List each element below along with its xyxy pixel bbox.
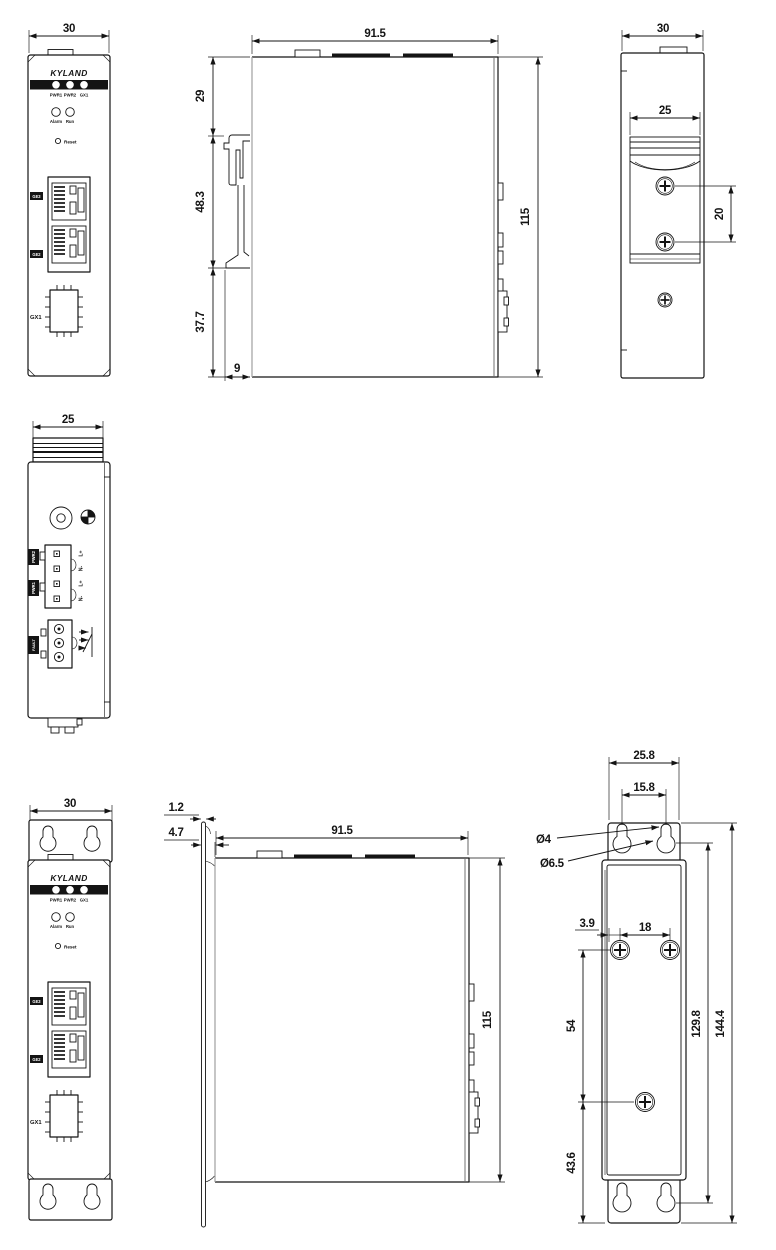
top-vent [365,855,415,859]
ge3-badge-label: GE3 [32,999,41,1004]
dim-clip-depth-label: 9 [234,363,240,375]
pin3-label: L+ [79,580,85,586]
led-pwr1 [52,886,60,894]
top-vent [294,855,352,859]
dim-hole-diameter-label: Ø6.5 [540,858,565,870]
ge3-badge-label: GE3 [32,194,41,199]
dim-overall-height-label: 144.4 [715,1009,727,1037]
led-gx1-label: GX1 [80,93,89,98]
rear-body [602,860,686,1180]
rj45-port-ge2[interactable] [52,226,86,263]
view-rear-din: 30 25 20 [621,23,736,378]
dim-front-din-width: 30 [29,23,109,53]
dimension-drawing: 30 KYLAND PWR1 PWR2 GX1 Alarm Run Reset [0,0,776,1250]
ge2-badge-label: GE2 [32,1057,41,1062]
side-tab [469,1080,474,1093]
earth-screw-icon [81,510,95,524]
top-vent [332,54,390,58]
dim-plate-thickness: 1.2 [164,802,216,819]
view-side-din: 91.5 29 48.3 37.7 9 115 [195,28,543,381]
dim-overall-height: 144.4 [681,823,737,1223]
side-tab [498,251,503,264]
rj45-port-ge2[interactable] [52,1031,86,1068]
dim-side-height-label: 115 [520,207,532,226]
side-body [252,57,498,377]
dim-rail-width-label: 25 [659,105,672,117]
bottom-tab [77,719,82,725]
alarm-label: Alarm [50,119,62,124]
dim-plate-thickness-label: 1.2 [168,802,183,814]
pwr2-badge-label: PWR2 [31,550,36,563]
din-clip-edge [33,438,103,462]
dim-side-wall-height-label: 115 [482,1010,494,1029]
led-gx1 [80,886,88,894]
bottom-foot [65,727,74,733]
led-gx1 [80,81,88,89]
dim-front-wall-width-label: 30 [64,798,76,810]
dim-rear-din-width-label: 30 [657,23,669,35]
dim-chain-left: 29 48.3 37.7 [195,57,250,377]
pwr1-badge-label: PWR1 [31,581,36,594]
dim-top-width: 25 [33,414,103,439]
dim-plate-offset: 4.7 [164,827,229,857]
dim-keyhole-pitch-label: 15.8 [633,782,655,794]
run-label: Run [66,924,75,929]
bottom-foot [51,727,59,733]
terminal-tab [41,629,46,636]
dim-side-width: 91.5 [252,28,498,54]
wall-plate-edge [202,822,206,1227]
top-tab [257,851,282,858]
dim-screw-edge-offset-label: 3.9 [579,918,594,930]
top-tab [660,47,687,53]
ge2-badge-label: GE2 [32,252,41,257]
dim-seg-bottom-label: 37.7 [195,311,207,332]
view-top: 25 PWR2 PWR1 L+ N- L+ N- FAULT [28,414,110,733]
led-pwr2-label: PWR2 [64,93,77,98]
din-rail-clip [224,135,250,268]
dim-plate-offset-label: 4.7 [168,827,183,839]
led-gx1-label: GX1 [80,898,89,903]
led-pwr2 [66,81,74,89]
pin1-label: L+ [79,550,85,556]
dim-side-wall-width-label: 91.5 [331,825,353,837]
terminal-tab [41,651,46,658]
pin2-label: N- [79,565,85,571]
alarm-label: Alarm [50,924,62,929]
pin4-label: N- [79,595,85,601]
reset-label: Reset [64,945,77,950]
bottom-tab [48,718,78,727]
side-tab [498,183,503,200]
drawing-canvas: 30 KYLAND PWR1 PWR2 GX1 Alarm Run Reset [0,0,776,1250]
top-tab [295,50,320,57]
side-tab [498,233,503,247]
rj45-port-ge3[interactable] [52,988,86,1025]
gx1-port-label: GX1 [30,315,42,321]
led-pwr2 [66,886,74,894]
side-tab [469,1034,474,1048]
side-tab [469,984,474,1001]
fault-badge-label: FAULT [32,638,36,650]
view-rear-wall: 25.8 15.8 Ø4 Ø6.5 3.9 18 54 43.6 [536,750,737,1223]
led-pwr1-label: PWR1 [50,93,63,98]
dim-side-width-label: 91.5 [364,28,386,40]
dim-clip-depth: 9 [225,270,250,381]
connector-notch [475,1119,480,1127]
kyland-logo: KYLAND [50,873,87,883]
dim-front-din-width-label: 30 [63,23,75,35]
rj45-port-ge3[interactable] [52,183,86,220]
connector-notch [504,318,509,326]
view-front-wall: 30 KYLAND PWR1 PWR2 GX1 Alarm Run Reset [28,798,112,1220]
run-label: Run [66,119,75,124]
terminal-tab [40,583,45,591]
dim-screw-pitch-label: 20 [714,208,726,220]
led-pwr2-label: PWR2 [64,898,77,903]
view-front-din: 30 KYLAND PWR1 PWR2 GX1 Alarm Run Reset [28,23,110,376]
gx1-port-label: GX1 [30,1120,42,1126]
led-pwr1-label: PWR1 [50,898,63,903]
led-pwr1 [52,81,60,89]
dim-screw-pitch-v-label: 54 [566,1019,578,1032]
dim-screw-pitch-h-label: 18 [639,922,652,934]
dim-plate-width-label: 25.8 [633,750,655,762]
dim-keyhole-span-label: 129.8 [691,1009,703,1037]
side-body [215,858,469,1182]
rear-body [621,53,704,378]
dim-top-width-label: 25 [62,414,75,426]
side-tab [498,279,503,292]
connector-notch [504,297,509,305]
kyland-logo: KYLAND [50,68,87,78]
dim-seg-mid-label: 48.3 [195,191,207,212]
connector-notch [475,1098,480,1106]
reset-label: Reset [64,140,77,145]
side-tab [469,1052,474,1065]
dim-bottom-offset: 43.6 [566,1102,605,1223]
top-vent [403,54,453,58]
view-side-wall: 1.2 4.7 91.5 115 [164,802,505,1227]
dim-side-wall-width: 91.5 [216,825,468,855]
dim-keyhole-pitch: 15.8 [622,782,666,825]
terminal-tab [40,552,45,560]
dim-seg-top-label: 29 [195,90,207,102]
dim-slot-diameter-label: Ø4 [536,834,552,846]
dim-bottom-offset-label: 43.6 [566,1152,578,1173]
